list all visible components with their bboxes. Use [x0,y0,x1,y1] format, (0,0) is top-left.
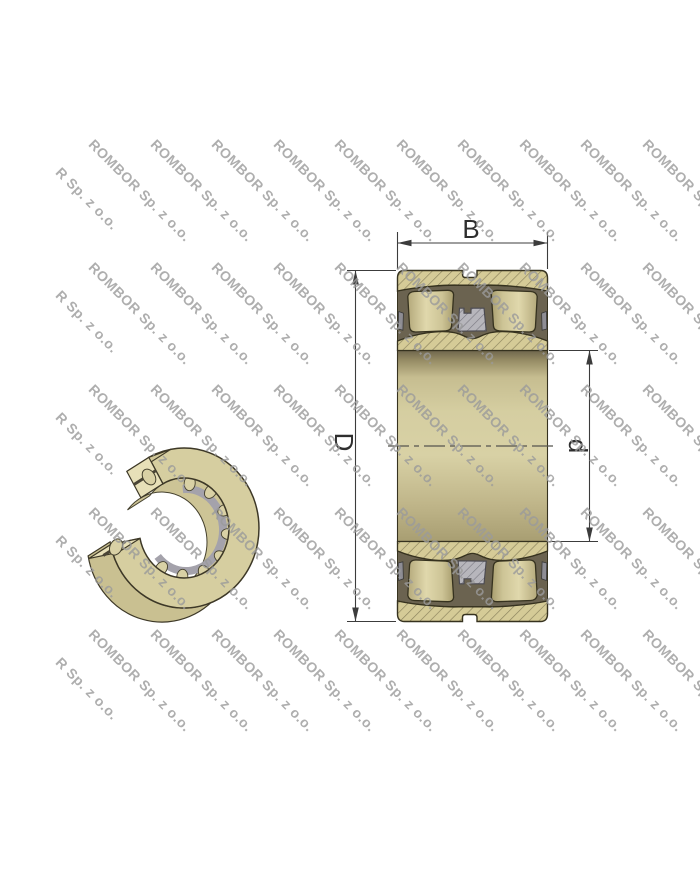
arrow-up [586,351,593,365]
bearing-cross-section: B D d [329,214,598,622]
bearing-3d-cutaway [88,448,259,622]
cage-end-left [398,312,403,331]
cage-guide-bottom [458,561,486,584]
page: { "page": { "background": "#ffffff" }, "… [0,0,700,869]
section-bottom-half [398,542,548,622]
cage-end-right-bottom [542,562,547,581]
dimension-label-outer-diameter: D [329,433,359,452]
arrow-down [586,528,593,542]
section-top-half [398,271,548,351]
roller-bottom-left [408,560,454,602]
cage-end-right [542,312,547,331]
cage-end-left-bottom [398,562,403,581]
cage-guide-top [458,308,486,331]
dimension-label-bore-diameter: d [563,439,593,453]
technical-drawing: B D d [0,0,700,869]
arrow-right [534,240,548,247]
roller-bottom-right [491,560,537,602]
arrow-down [352,608,359,622]
arrow-up [352,271,359,285]
dimension-label-width: B [462,214,479,244]
arrow-left [398,240,412,247]
roller-top-left [408,290,454,332]
roller-top-right [491,290,537,332]
